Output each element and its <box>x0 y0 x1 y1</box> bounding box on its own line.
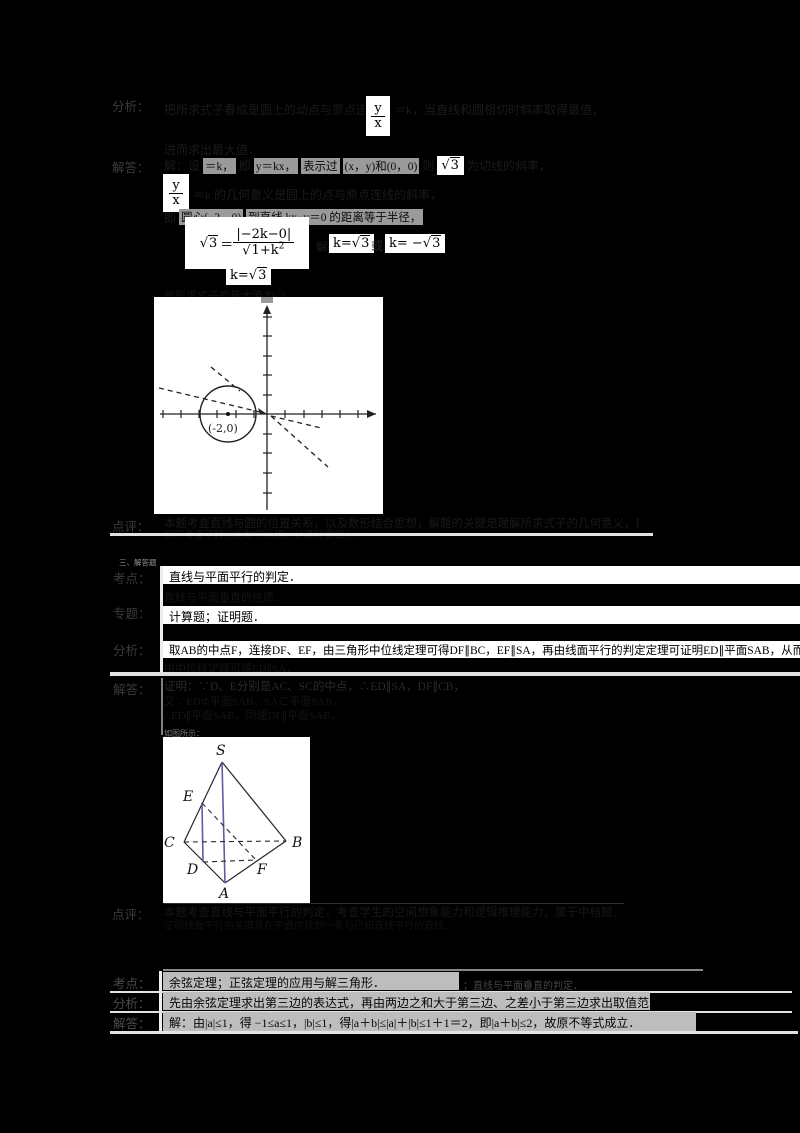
vertex-label-S: S <box>216 743 226 759</box>
vertex-label-E: E <box>182 789 193 805</box>
kaodian-label: 考点： <box>113 568 151 587</box>
analysis-line1b: ＝k，当直线和圆相切时斜率取得最值， <box>394 101 604 118</box>
solid-edges <box>184 762 286 883</box>
formula-numerator: |−2k−0| <box>233 228 294 243</box>
vertex-label-D: D <box>186 862 198 878</box>
zhuanti-text: 计算题；证明题． <box>163 606 800 624</box>
tetrahedron-figure: S E C B D F A <box>163 737 310 903</box>
answer-line1-text3: 则 <box>422 157 434 174</box>
p3-kaodian-text: 余弦定理；正弦定理的应用与解三角形． <box>163 972 459 990</box>
answer-line1: 解：设 ＝k， 即 y＝kx， 表示过 (x，y)和(0，0) 则 √3 为切线… <box>164 153 551 178</box>
answer-line1-chip3: 表示过 <box>301 158 340 174</box>
zhuanti-band: 计算题；证明题． <box>163 606 800 624</box>
fraction-numerator: y <box>371 102 384 117</box>
circle-center-dot <box>226 412 230 416</box>
label-column-separator <box>159 971 162 1032</box>
p3-kaodian-text2: ；直线与平面垂直的判定． <box>463 977 583 992</box>
answer-label: 解答： <box>112 157 150 176</box>
p3-fenxi-label: 分析： <box>113 993 151 1012</box>
k-equals-neg-sqrt3-image: k= −√3 <box>385 234 445 253</box>
vertex-label-B: B <box>291 835 302 851</box>
label-column-separator <box>161 678 163 735</box>
dianping-line2: 证明线面平行的关键是在平面内找到一条与已知直线平行的直线． <box>164 917 454 932</box>
jieda-line3: ∴ED∥平面SAB，同理DF∥平面SAB， <box>164 707 342 723</box>
jieda-line1: 证明：∵D、E分别是AC、SC的中点，∴ED∥SA，DF∥CB， <box>164 678 465 694</box>
circle-graph-svg: (-2,0) <box>154 297 383 514</box>
vertex-labels: S E C B D F A <box>164 743 302 902</box>
p3-kaodian-label: 考点： <box>113 973 151 992</box>
jieda-label: 解答： <box>113 679 151 698</box>
p3-jieda-label: 解答： <box>113 1013 151 1032</box>
kaodian-text: 直线与平面平行的判定． <box>163 566 800 584</box>
zhuanti-label: 专题： <box>113 603 151 622</box>
p3-jieda-text: 解：由|a|≤1，得 −1≤a≤1，|b|≤1，得|a＋b|≤|a|＋|b|≤1… <box>163 1012 696 1031</box>
axes <box>160 307 376 510</box>
row-separator-line <box>110 672 800 676</box>
kaodian-band: 直线与平面平行的判定． <box>163 566 800 584</box>
row-separator-line <box>110 1031 798 1034</box>
answer-line3-text: 即 <box>164 209 176 226</box>
p3-jieda-band: 解：由|a|≤1，得 −1≤a≤1，|b|≤1，得|a＋b|≤|a|＋|b|≤1… <box>163 1012 696 1031</box>
row-separator-line <box>163 969 703 971</box>
k-equals-sqrt3-image: k=√3 <box>329 234 374 253</box>
or-text: 或 <box>371 237 383 254</box>
dashed-lines <box>159 367 328 467</box>
dianping-label: 点评： <box>112 904 150 923</box>
fraction-numerator: y <box>169 179 182 194</box>
kaodian-text2: 直线与平面垂直的性质． <box>164 589 285 605</box>
vertex-label-C: C <box>164 835 175 851</box>
analysis-line1a: 把所求式子看成是圆上的动点与原点连线的斜率，设 <box>164 101 364 118</box>
answer-line1-text4: 为切线的斜率， <box>467 157 551 174</box>
tetrahedron-svg: S E C B D F A <box>163 737 310 903</box>
section-header: 三、解答题 <box>119 557 157 568</box>
document-page: 分析： 把所求式子看成是圆上的动点与原点连线的斜率，设 y x ＝k，当直线和圆… <box>0 0 800 1133</box>
row-separator-line <box>110 533 653 536</box>
fenxi-label: 分析： <box>113 640 151 659</box>
circle-center-coordinate-label: (-2,0) <box>208 422 238 435</box>
formula-denominator: √1+k2 <box>242 243 285 258</box>
fenxi-band: 取AB的中点F，连接DF、EF，由三角形中位线定理可得DF∥BC，EF∥SA，再… <box>163 641 800 658</box>
formula-lhs: 3 <box>208 235 218 251</box>
answer-line1-text: 解：设 <box>164 157 200 174</box>
y-axis-label-smudge <box>261 297 273 303</box>
fenxi-line1: 取AB的中点F，连接DF、EF，由三角形中位线定理可得DF∥BC，EF∥SA，再… <box>163 641 800 658</box>
answer-line2: ＝k 的几何意义是圆上的点与原点连线的斜率， <box>193 186 442 203</box>
vertex-label-A: A <box>217 886 229 902</box>
fraction-yx-image-2: y x <box>163 174 189 212</box>
answer-line1-chip2: y＝kx， <box>254 158 298 174</box>
answer-line1-chip1: ＝k， <box>203 158 236 174</box>
x-axis-arrow <box>367 410 376 418</box>
dashed-edges <box>184 803 286 862</box>
fraction-yx-image-1: y x <box>366 96 390 136</box>
circle-graph-figure: (-2,0) <box>154 297 383 514</box>
y-axis-arrow <box>263 305 271 314</box>
answer-line1-chip4: (x，y)和(0，0) <box>343 158 420 174</box>
sqrt3-image: √3 <box>437 156 464 175</box>
vertex-label-F: F <box>256 862 268 878</box>
fraction-denominator: x <box>374 117 381 131</box>
answer-line1-text2: 即 <box>239 157 251 174</box>
p3-fenxi-text: 先由余弦定理求出第三边的表达式，再由两边之和大于第三边、之差小于第三边求出取值范… <box>163 992 650 1010</box>
tangent-arrowhead <box>258 408 267 414</box>
p3-fenxi-band: 先由余弦定理求出第三边的表达式，再由两边之和大于第三边、之差小于第三边求出取值范… <box>163 992 650 1010</box>
p3-kaodian-band: 余弦定理；正弦定理的应用与解三角形． <box>163 972 459 990</box>
formula-equals: ＝ <box>220 234 233 253</box>
k-result-image: k=√3 <box>226 266 271 285</box>
analysis-label: 分析： <box>112 96 150 115</box>
distance-formula-image: √3 ＝ |−2k−0| √1+k2 <box>185 217 309 269</box>
fraction-denominator: x <box>172 194 179 208</box>
